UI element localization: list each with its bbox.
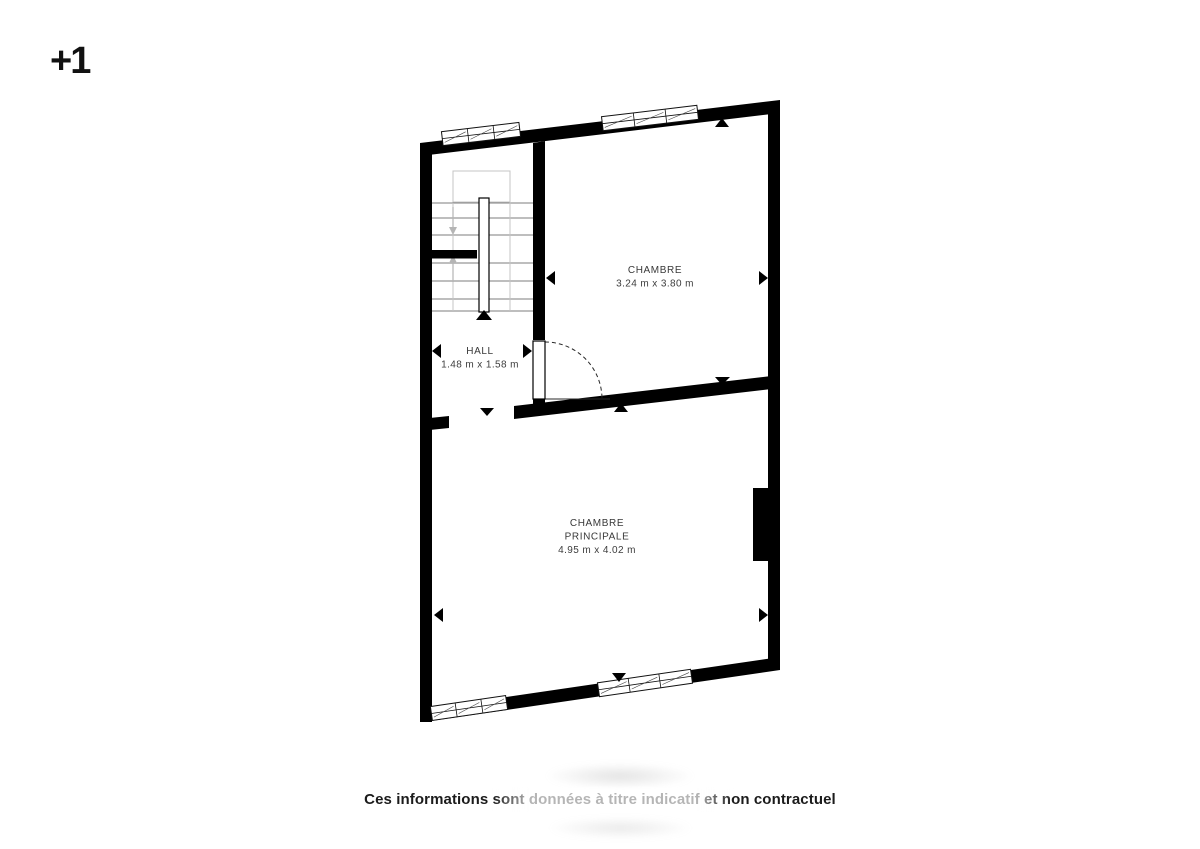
disclaimer-text: Ces informations sont données à titre in… <box>0 791 1200 808</box>
staircase <box>432 171 533 320</box>
room-dimensions-chambre: 3.24 m x 3.80 m <box>616 279 694 290</box>
marker-chambre-left-icon <box>546 271 555 285</box>
marker-chambre-right-icon <box>759 271 768 285</box>
wall-stair-stub <box>420 250 477 259</box>
room-dimensions-hall: 1.48 m x 1.58 m <box>441 360 519 371</box>
room-label-chambre: CHAMBRE <box>628 265 682 276</box>
stair-direction-down-arrow <box>449 207 457 235</box>
chimney-block <box>753 488 770 561</box>
room-label-chambre-principale-line1: CHAMBRE <box>570 518 624 529</box>
wall-middle <box>514 375 780 419</box>
marker-principale-right-icon <box>759 608 768 622</box>
arrow-head-down-icon <box>449 227 457 235</box>
room-label-chambre-principale-line2: PRINCIPALE <box>565 532 630 543</box>
room-label-hall: HALL <box>466 346 493 357</box>
marker-hall-right-icon <box>523 344 532 358</box>
page: +1 <box>0 0 1200 849</box>
wall-divider-vertical <box>533 141 545 340</box>
stair-landing-outline <box>453 171 510 202</box>
window-symbol-bottom-right <box>597 669 692 696</box>
marker-hall-bottom-icon <box>480 408 494 416</box>
marker-hall-left-icon <box>432 344 441 358</box>
marker-principale-left-icon <box>434 608 443 622</box>
stair-direction-up-arrow <box>449 255 457 282</box>
window-symbol-bottom-left <box>430 696 507 721</box>
door-swing-arc <box>545 342 602 399</box>
walls <box>420 100 780 722</box>
door-leaf <box>533 341 545 399</box>
wall-left <box>420 143 432 722</box>
door <box>533 341 610 399</box>
floor-plan: CHAMBRE 3.24 m x 3.80 m HALL 1.48 m x 1.… <box>0 0 1200 849</box>
stair-stringer <box>479 198 489 312</box>
room-dimensions-chambre-principale: 4.95 m x 4.02 m <box>558 545 636 556</box>
